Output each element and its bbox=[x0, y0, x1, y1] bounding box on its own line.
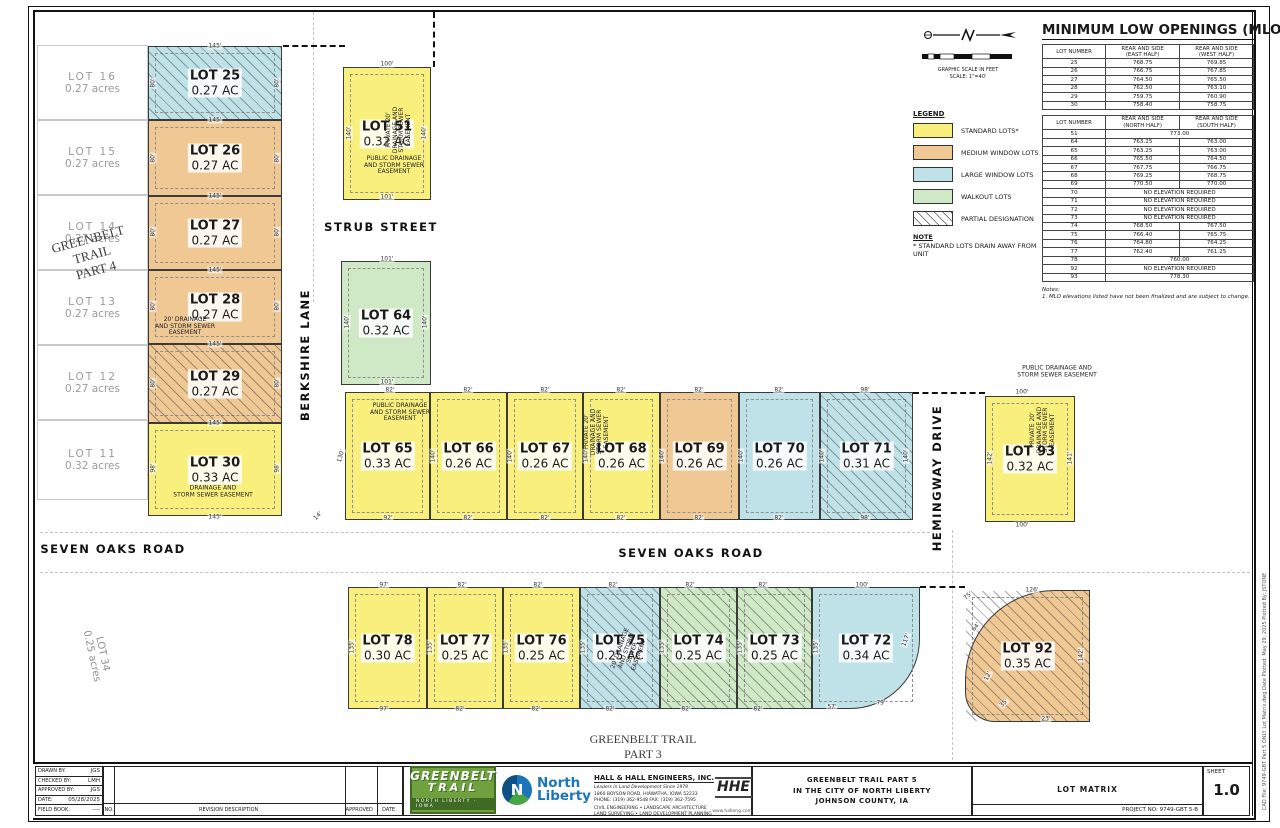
sheet-title-box: LOT MATRIX PROJECT NO: 9749-GBT 5-B bbox=[972, 766, 1203, 816]
dimension-label: 97' bbox=[378, 582, 389, 589]
lot-name: LOT 77 bbox=[438, 634, 492, 649]
lot-acreage: 0.26 AC bbox=[518, 457, 572, 471]
lot-acreage: 0.35 AC bbox=[1000, 657, 1054, 671]
lot-name: LOT 72 bbox=[839, 634, 893, 649]
legend-item-label: WALKOUT LOTS bbox=[961, 193, 1012, 201]
cad-file-note: CAD File: 9749-GBT Part 5 ONLY Lot Matri… bbox=[1262, 573, 1268, 810]
sheet-number-box: SHEET 1.0 bbox=[1203, 766, 1250, 816]
greenbelt-trail-logo: GREENBELT TRAIL NORTH LIBERTY · IOWA bbox=[410, 766, 496, 814]
mlo-cell: 92 bbox=[1043, 265, 1106, 273]
mlo-row: 68769.25768.75 bbox=[1043, 172, 1254, 180]
lot-acreage: 0.26 AC bbox=[594, 457, 648, 471]
revision-approved-header: APPROVED bbox=[343, 804, 375, 815]
lot-30-label: LOT 300.33 AC bbox=[188, 455, 242, 484]
info-row: APPROVED BY:JGS bbox=[36, 786, 102, 796]
dimension-label: 98' bbox=[859, 515, 870, 522]
dimension-label: 100' bbox=[1014, 389, 1029, 396]
dimension-label: 82' bbox=[462, 515, 473, 522]
lot-73: LOT 730.25 AC bbox=[737, 587, 812, 709]
street-label-seven-oaks-road: SEVEN OAKS ROAD bbox=[618, 546, 763, 560]
mlo-row: 73NO ELEVATION REQUIRED bbox=[1043, 214, 1254, 222]
dimension-label: 98' bbox=[274, 462, 281, 473]
mlo-cell: 768.75 bbox=[1180, 172, 1254, 180]
info-row: FIELD BOOK:---- bbox=[36, 805, 102, 815]
mlo-row: 71NO ELEVATION REQUIRED bbox=[1043, 197, 1254, 205]
mlo-cell: 764.50 bbox=[1106, 76, 1180, 84]
easement-annotation: PUBLIC DRAINAGE AND STORM SEWER EASEMENT bbox=[370, 403, 430, 423]
firm-name: HALL & HALL ENGINEERS, INC. bbox=[594, 774, 714, 783]
lot-69: LOT 690.26 AC bbox=[660, 392, 739, 520]
dimension-label: 98' bbox=[150, 462, 157, 473]
easement-annotation: 20' DRAINAGE AND STORM SEWER EASEMENT bbox=[155, 317, 215, 337]
firm-address: 1860 BOYSON ROAD, HIAWATHA, IOWA 52233 bbox=[594, 792, 698, 797]
mlo-notes: Notes: 1. MLO elevations listed have not… bbox=[1042, 287, 1254, 301]
mlo-cell: 759.75 bbox=[1106, 93, 1180, 101]
mlo-cell: 767.75 bbox=[1106, 164, 1180, 172]
mlo-row: 64763.25763.00 bbox=[1043, 138, 1254, 146]
project-title-box: GREENBELT TRAIL PART 5 IN THE CITY OF NO… bbox=[752, 766, 972, 816]
mlo-cell: 765.75 bbox=[1180, 231, 1254, 239]
mlo-cell: 762.50 bbox=[1106, 84, 1180, 92]
lot-69-label: LOT 690.26 AC bbox=[672, 442, 726, 471]
mlo-cell: 27 bbox=[1043, 76, 1106, 84]
revision-desc-header: REVISION DESCRIPTION bbox=[114, 804, 343, 815]
legend-note: * STANDARD LOTS DRAIN AWAY FROM UNIT bbox=[913, 242, 1043, 258]
revision-header: NO. REVISION DESCRIPTION APPROVED DATE bbox=[104, 803, 402, 815]
firm-phone: PHONE: (319) 362-9548 FAX: (319) 362-759… bbox=[594, 798, 696, 803]
north-liberty-logo: N North Liberty bbox=[502, 768, 592, 812]
road-centerline bbox=[952, 530, 953, 760]
lot-name: LOT 92 bbox=[1000, 642, 1054, 657]
dimension-label: 80' bbox=[274, 226, 281, 237]
lot-74-label: LOT 740.25 AC bbox=[671, 634, 725, 663]
dimension-label: 82' bbox=[456, 582, 467, 589]
lot-name: LOT 25 bbox=[188, 69, 242, 84]
ghost-lot-acres: 0.27 acres bbox=[65, 158, 120, 170]
info-row: CHECKED BY:LMH bbox=[36, 777, 102, 787]
dimension-label: 80' bbox=[150, 152, 157, 163]
mlo-table-1: LOT NUMBERREAR AND SIDE (EAST HALF)REAR … bbox=[1042, 44, 1254, 110]
mlo-cell: 760.00 bbox=[1106, 256, 1254, 264]
dimension-label: 135' bbox=[503, 639, 510, 654]
info-value: LMH bbox=[88, 778, 100, 784]
info-label: CHECKED BY: bbox=[38, 778, 71, 784]
lot-30: LOT 300.33 AC bbox=[148, 423, 282, 516]
dimension-label: 80' bbox=[150, 377, 157, 388]
mlo-cell: 768.75 bbox=[1106, 59, 1180, 67]
dimension-label: 135' bbox=[427, 639, 434, 654]
lot-67-label: LOT 670.26 AC bbox=[518, 442, 572, 471]
dimension-label: 82' bbox=[693, 387, 704, 394]
road-edge-line bbox=[40, 532, 930, 533]
easement-annotation: PRIVATE 20' DRAINAGE AND STORM SEWER EAS… bbox=[386, 107, 412, 153]
dimension-label: 23' bbox=[1040, 716, 1051, 723]
easement-annotation: PUBLIC DRAINAGE AND STORM SEWER EASEMENT bbox=[364, 156, 424, 176]
dimension-label: 140' bbox=[430, 448, 437, 463]
scale-caption: GRAPHIC SCALE IN FEET bbox=[918, 67, 1018, 74]
mlo-cell: 769.85 bbox=[1180, 59, 1254, 67]
ghost-lot-name: LOT 13 bbox=[68, 296, 117, 308]
dimension-label: 82' bbox=[539, 387, 550, 394]
street-label-strub-street: STRUB STREET bbox=[324, 220, 438, 234]
mlo-cell: 770.50 bbox=[1106, 180, 1180, 188]
lot-29-label: LOT 290.27 AC bbox=[188, 369, 242, 398]
mlo-row: 65763.25763.00 bbox=[1043, 147, 1254, 155]
dimension-label: 82' bbox=[462, 387, 473, 394]
mlo-cell: NO ELEVATION REQUIRED bbox=[1106, 265, 1254, 273]
dimension-label: 80' bbox=[274, 77, 281, 88]
dimension-label: 82' bbox=[607, 582, 618, 589]
lot-70: LOT 700.26 AC bbox=[739, 392, 820, 520]
road-centerline bbox=[313, 12, 314, 302]
mlo-row: 51773.00 bbox=[1043, 130, 1254, 138]
mlo-cell: 76 bbox=[1043, 239, 1106, 247]
dimension-label: 82' bbox=[757, 582, 768, 589]
info-row: DATE:05/28/2025 bbox=[36, 796, 102, 806]
firm-services1: CIVIL ENGINEERING • LANDSCAPE ARCHITECTU… bbox=[594, 806, 707, 811]
ghost-lot-lot-12: LOT 120.27 acres bbox=[37, 345, 148, 420]
mlo-cell: 769.25 bbox=[1106, 172, 1180, 180]
dimension-label: 80' bbox=[274, 300, 281, 311]
mlo-cell: 768.50 bbox=[1106, 222, 1180, 230]
mlo-cell: 761.25 bbox=[1180, 248, 1254, 256]
legend-swatch bbox=[913, 211, 953, 226]
lot-name: LOT 64 bbox=[359, 309, 413, 324]
info-value: ---- bbox=[92, 807, 100, 813]
dimension-label: 145' bbox=[207, 267, 222, 274]
lot-73-label: LOT 730.25 AC bbox=[747, 634, 801, 663]
info-value: JGS bbox=[91, 787, 100, 793]
dimension-label: 140' bbox=[903, 448, 910, 463]
lot-acreage: 0.34 AC bbox=[839, 649, 893, 663]
ghost-lot-name: LOT 12 bbox=[68, 371, 117, 383]
dimension-label: 82' bbox=[604, 706, 615, 713]
mlo-cell: 763.25 bbox=[1106, 138, 1180, 146]
lot-name: LOT 29 bbox=[188, 369, 242, 384]
dimension-label: 101' bbox=[379, 379, 394, 386]
dimension-label: 80' bbox=[274, 377, 281, 388]
mlo-row: 75766.40765.75 bbox=[1043, 231, 1254, 239]
lot-74: LOT 740.25 AC bbox=[660, 587, 737, 709]
lot-66-label: LOT 660.26 AC bbox=[441, 442, 495, 471]
dimension-label: 101' bbox=[379, 194, 394, 201]
lot-name: LOT 74 bbox=[671, 634, 725, 649]
mlo-cell: 74 bbox=[1043, 222, 1106, 230]
lot-name: LOT 76 bbox=[514, 634, 568, 649]
project-number: PROJECT NO: 9749-GBT 5-B bbox=[973, 804, 1202, 815]
info-row: DRAWN BY:JGS bbox=[36, 767, 102, 777]
mlo-row: 30758.40758.75 bbox=[1043, 101, 1254, 109]
mlo-cell: 51 bbox=[1043, 130, 1106, 138]
dimension-label: 141' bbox=[1067, 450, 1074, 465]
mlo-row: 77762.40761.25 bbox=[1043, 248, 1254, 256]
mlo-cell: 64 bbox=[1043, 138, 1106, 146]
lot-acreage: 0.31 AC bbox=[839, 457, 893, 471]
mlo-cell: NO ELEVATION REQUIRED bbox=[1106, 189, 1254, 197]
mlo-row: 93778.30 bbox=[1043, 273, 1254, 281]
boundary-dash bbox=[433, 12, 435, 67]
lot-71: LOT 710.31 AC bbox=[820, 392, 913, 520]
legend-title: LEGEND bbox=[913, 110, 1043, 118]
mlo-cell: 766.40 bbox=[1106, 231, 1180, 239]
mlo-row: 67767.75766.75 bbox=[1043, 164, 1254, 172]
project-title-line2: IN THE CITY OF NORTH LIBERTY bbox=[793, 786, 931, 797]
mlo-cell: 66 bbox=[1043, 155, 1106, 163]
lot-acreage: 0.27 AC bbox=[188, 159, 242, 173]
dimension-label: 135' bbox=[580, 639, 587, 654]
mlo-row: 70NO ELEVATION REQUIRED bbox=[1043, 189, 1254, 197]
mlo-tables: LOT NUMBERREAR AND SIDE (EAST HALF)REAR … bbox=[1042, 44, 1254, 282]
mlo-cell: 773.00 bbox=[1106, 130, 1254, 138]
dimension-label: 140' bbox=[344, 314, 351, 329]
mlo-row: 78760.00 bbox=[1043, 256, 1254, 264]
dimension-label: 82' bbox=[615, 515, 626, 522]
ghost-lot-lot-11: LOT 110.32 acres bbox=[37, 420, 148, 500]
mlo-cell: 765.50 bbox=[1106, 155, 1180, 163]
lot-name: LOT 26 bbox=[188, 144, 242, 159]
dimension-label: 135' bbox=[813, 639, 820, 654]
firm-services2: LAND SURVEYING • LAND DEVELOPMENT PLANNI… bbox=[594, 812, 712, 817]
dimension-label: 140' bbox=[507, 448, 514, 463]
drawing-info-box: DRAWN BY:JGSCHECKED BY:LMHAPPROVED BY:JG… bbox=[35, 766, 103, 816]
legend-swatch bbox=[913, 167, 953, 182]
lot-27: LOT 270.27 AC bbox=[148, 196, 282, 270]
north-arrow-icon bbox=[918, 26, 1018, 44]
mlo-cell: 65 bbox=[1043, 147, 1106, 155]
lot-77-label: LOT 770.25 AC bbox=[438, 634, 492, 663]
mlo-cell: 69 bbox=[1043, 180, 1106, 188]
dimension-label: 82' bbox=[384, 387, 395, 394]
mlo-cell: 760.90 bbox=[1180, 93, 1254, 101]
lot-26: LOT 260.27 AC bbox=[148, 120, 282, 196]
dimension-label: 82' bbox=[693, 515, 704, 522]
sheet-title: LOT MATRIX bbox=[973, 785, 1202, 794]
revision-date-header: DATE bbox=[375, 804, 402, 815]
lot-26-label: LOT 260.27 AC bbox=[188, 144, 242, 173]
mlo-panel: MINIMUM LOW OPENINGS (MLO): LOT NUMBERRE… bbox=[1042, 22, 1254, 301]
dimension-label: 80' bbox=[150, 226, 157, 237]
mlo-cell: 765.50 bbox=[1180, 76, 1254, 84]
ghost-lot-name: LOT 11 bbox=[68, 448, 117, 460]
mlo-cell: 766.75 bbox=[1180, 164, 1254, 172]
lot-76: LOT 760.25 AC bbox=[503, 587, 580, 709]
mlo-row: 92NO ELEVATION REQUIRED bbox=[1043, 265, 1254, 273]
easement-annotation: DRAINAGE AND STORM SEWER EASEMENT bbox=[173, 485, 252, 498]
mlo-cell: 762.40 bbox=[1106, 248, 1180, 256]
lot-acreage: 0.30 AC bbox=[360, 649, 414, 663]
mlo-title: MINIMUM LOW OPENINGS (MLO): bbox=[1042, 22, 1254, 40]
mlo-header: LOT NUMBER bbox=[1043, 115, 1106, 129]
lot-name: LOT 73 bbox=[747, 634, 801, 649]
lot-25: LOT 250.27 AC bbox=[148, 46, 282, 120]
lot-acreage: 0.27 AC bbox=[188, 234, 242, 248]
mlo-header: LOT NUMBER bbox=[1043, 45, 1106, 59]
easement-annotation: PRIVATE 20' DRAINAGE AND STORM SEWER EAS… bbox=[1030, 407, 1056, 453]
dimension-label: 140' bbox=[738, 448, 745, 463]
lot-72-label: LOT 720.34 AC bbox=[839, 634, 893, 663]
dimension-label: 100' bbox=[379, 61, 394, 68]
mlo-cell: 763.10 bbox=[1180, 84, 1254, 92]
mlo-cell: 68 bbox=[1043, 172, 1106, 180]
dimension-label: 145' bbox=[207, 193, 222, 200]
project-title-line1: GREENBELT TRAIL PART 5 bbox=[807, 775, 917, 786]
lot-66: LOT 660.26 AC bbox=[430, 392, 507, 520]
north-liberty-logo-icon: N bbox=[502, 775, 532, 805]
side-strip: CAD File: 9749-GBT Part 5 ONLY Lot Matri… bbox=[1252, 10, 1269, 816]
dimension-label: 100' bbox=[1014, 522, 1029, 529]
info-value: JGS bbox=[91, 768, 100, 774]
lot-92-label: LOT 920.35 AC bbox=[1000, 642, 1054, 671]
mlo-cell: 764.25 bbox=[1180, 239, 1254, 247]
dimension-label: 140' bbox=[819, 448, 826, 463]
info-value: 05/28/2025 bbox=[68, 797, 100, 803]
lot-name: LOT 69 bbox=[672, 442, 726, 457]
dimension-label: 145' bbox=[207, 43, 222, 50]
dimension-label: 82' bbox=[530, 706, 541, 713]
easement-annotation: PUBLIC DRAINAGE AND STORM SEWER EASEMENT bbox=[1017, 365, 1096, 378]
lot-acreage: 0.25 AC bbox=[671, 649, 725, 663]
legend-item-label: LARGE WINDOW LOTS bbox=[961, 171, 1033, 179]
ghost-lot-lot-15: LOT 150.27 acres bbox=[37, 120, 148, 195]
dimension-label: 82' bbox=[680, 706, 691, 713]
mlo-cell: 767.50 bbox=[1180, 222, 1254, 230]
revision-no-header: NO. bbox=[104, 804, 114, 815]
dimension-label: 100' bbox=[854, 582, 869, 589]
mlo-row: 26766.75767.85 bbox=[1043, 67, 1254, 75]
mlo-cell: 764.50 bbox=[1180, 155, 1254, 163]
dimension-label: 82' bbox=[539, 515, 550, 522]
legend-item: PARTIAL DESIGNATION bbox=[913, 211, 1043, 226]
lot-acreage: 0.25 AC bbox=[747, 649, 801, 663]
dimension-label: 82' bbox=[752, 706, 763, 713]
mlo-cell: 71 bbox=[1043, 197, 1106, 205]
street-label-hemingway-drive: HEMINGWAY DRIVE bbox=[930, 405, 944, 552]
mlo-row: 72NO ELEVATION REQUIRED bbox=[1043, 206, 1254, 214]
mlo-cell: 763.25 bbox=[1106, 147, 1180, 155]
mlo-header: REAR AND SIDE (WEST HALF) bbox=[1180, 45, 1254, 59]
mlo-cell: NO ELEVATION REQUIRED bbox=[1106, 206, 1254, 214]
mlo-cell: 25 bbox=[1043, 59, 1106, 67]
lot-name: LOT 65 bbox=[360, 442, 414, 457]
mlo-cell: NO ELEVATION REQUIRED bbox=[1106, 214, 1254, 222]
dimension-label: 142' bbox=[987, 450, 994, 465]
ghost-lot-name: LOT 15 bbox=[68, 146, 117, 158]
north-arrow-and-scale: GRAPHIC SCALE IN FEET SCALE: 1"=40' bbox=[918, 26, 1018, 81]
legend-item: WALKOUT LOTS bbox=[913, 189, 1043, 204]
ghost-lot-lot-13: LOT 130.27 acres bbox=[37, 270, 148, 345]
legend-items: STANDARD LOTS*MEDIUM WINDOW LOTSLARGE WI… bbox=[913, 123, 1043, 226]
mlo-note-1: 1. MLO elevations listed have not been f… bbox=[1042, 294, 1250, 300]
mlo-cell: 67 bbox=[1043, 164, 1106, 172]
legend-swatch bbox=[913, 189, 953, 204]
lot-72: LOT 720.34 AC bbox=[812, 587, 920, 709]
info-label: FIELD BOOK: bbox=[38, 807, 70, 813]
legend-swatch bbox=[913, 145, 953, 160]
lot-29: LOT 290.27 AC bbox=[148, 344, 282, 423]
dimension-label: 145' bbox=[207, 341, 222, 348]
lot-70-label: LOT 700.26 AC bbox=[752, 442, 806, 471]
lot-25-label: LOT 250.27 AC bbox=[188, 69, 242, 98]
boundary-dash bbox=[283, 45, 345, 47]
mlo-notes-label: Notes: bbox=[1042, 287, 1060, 293]
ghost-lot-acres: 0.27 acres bbox=[65, 383, 120, 395]
info-label: DRAWN BY: bbox=[38, 768, 66, 774]
sheet-label: SHEET bbox=[1204, 767, 1249, 775]
mlo-cell: 78 bbox=[1043, 256, 1106, 264]
mlo-row: 66765.50764.50 bbox=[1043, 155, 1254, 163]
mlo-header: REAR AND SIDE (NORTH HALF) bbox=[1106, 115, 1180, 129]
dimension-label: 82' bbox=[773, 515, 784, 522]
lot-name: LOT 70 bbox=[752, 442, 806, 457]
mlo-cell: 73 bbox=[1043, 214, 1106, 222]
dimension-label: 126' bbox=[1024, 587, 1039, 594]
street-label-seven-oaks-road: SEVEN OAKS ROAD bbox=[40, 542, 185, 556]
mlo-cell: 764.80 bbox=[1106, 239, 1180, 247]
mlo-row: 76764.80764.25 bbox=[1043, 239, 1254, 247]
dimension-label: 92' bbox=[382, 515, 393, 522]
dimension-label: 97' bbox=[378, 706, 389, 713]
north-liberty-logo-text: North Liberty bbox=[537, 777, 591, 804]
legend-item-label: STANDARD LOTS* bbox=[961, 127, 1019, 135]
dimension-label: 80' bbox=[150, 77, 157, 88]
legend-item: LARGE WINDOW LOTS bbox=[913, 167, 1043, 182]
dimension-label: 135' bbox=[659, 639, 666, 654]
mlo-header: REAR AND SIDE (SOUTH HALF) bbox=[1180, 115, 1254, 129]
mlo-row: 74768.50767.50 bbox=[1043, 222, 1254, 230]
mlo-cell: 26 bbox=[1043, 67, 1106, 75]
sheet-number: 1.0 bbox=[1204, 781, 1249, 799]
dimension-label: 80' bbox=[274, 152, 281, 163]
mlo-cell: 77 bbox=[1043, 248, 1106, 256]
dimension-label: 140' bbox=[422, 314, 429, 329]
ghost-lot-acres: 0.27 acres bbox=[65, 308, 120, 320]
dimension-label: 140' bbox=[421, 125, 428, 140]
lot-78: LOT 780.30 AC bbox=[348, 587, 427, 709]
hhe-logo: HHE bbox=[715, 777, 752, 798]
lot-name: LOT 30 bbox=[188, 455, 242, 470]
lot-67: LOT 670.26 AC bbox=[507, 392, 583, 520]
mlo-row: 29759.75760.90 bbox=[1043, 93, 1254, 101]
dimension-label: 79' bbox=[875, 700, 886, 707]
info-label: APPROVED BY: bbox=[38, 787, 74, 793]
easement-annotation: PRIVATE 20' DRAINAGE AND STORM SEWER EAS… bbox=[584, 409, 610, 455]
boundary-dash bbox=[920, 586, 965, 588]
scale-ratio: SCALE: 1"=40' bbox=[918, 74, 1018, 81]
adjacent-plat-label: GREENBELT TRAIL PART 3 bbox=[590, 732, 697, 762]
dimension-label: 82' bbox=[684, 582, 695, 589]
dimension-label: 80' bbox=[150, 300, 157, 311]
lot-name: LOT 67 bbox=[518, 442, 572, 457]
lot-acreage: 0.26 AC bbox=[441, 457, 495, 471]
lot-65-label: LOT 650.33 AC bbox=[360, 442, 414, 471]
mlo-cell: 75 bbox=[1043, 231, 1106, 239]
dimension-label: 82' bbox=[532, 582, 543, 589]
ghost-lot-lot-16: LOT 160.27 acres bbox=[37, 45, 148, 120]
lot-acreage: 0.33 AC bbox=[360, 457, 414, 471]
greenbelt-logo-line2: TRAIL bbox=[428, 782, 479, 794]
lot-92: LOT 920.35 AC bbox=[965, 590, 1090, 722]
lot-76-label: LOT 760.25 AC bbox=[514, 634, 568, 663]
mlo-cell: 758.40 bbox=[1106, 101, 1180, 109]
lot-name: LOT 27 bbox=[188, 219, 242, 234]
mlo-cell: 767.85 bbox=[1180, 67, 1254, 75]
firm-website: www.halleng.com bbox=[712, 809, 752, 814]
dimension-label: 135' bbox=[737, 639, 744, 654]
mlo-cell: 758.75 bbox=[1180, 101, 1254, 109]
mlo-cell: 770.00 bbox=[1180, 180, 1254, 188]
ghost-lot-acres: 0.27 acres bbox=[65, 83, 120, 95]
mlo-cell: 93 bbox=[1043, 273, 1106, 281]
